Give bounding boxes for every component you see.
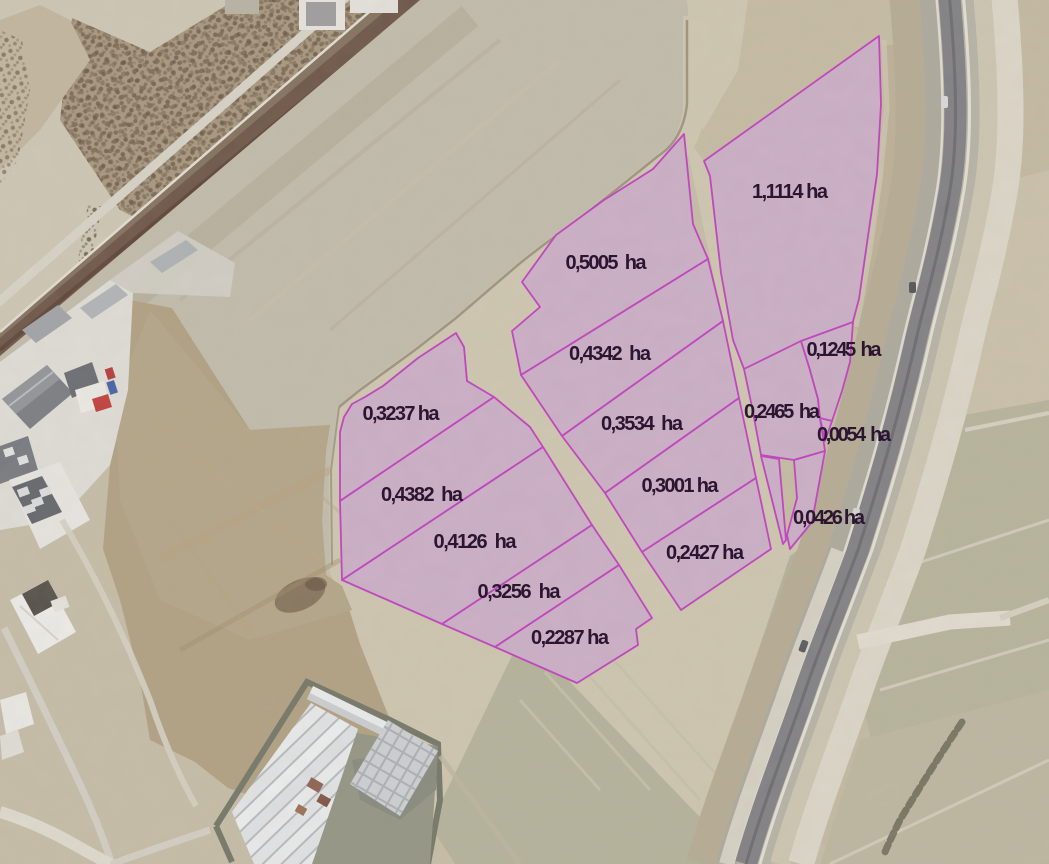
svg-text:0,2465 ha: 0,2465 ha xyxy=(744,401,821,423)
svg-text:0,1245 ha: 0,1245 ha xyxy=(807,339,883,361)
svg-text:1,1114 ha: 1,1114 ha xyxy=(752,181,829,203)
svg-text:0,5005 ha: 0,5005 ha xyxy=(566,252,648,274)
svg-text:0,4342 ha: 0,4342 ha xyxy=(569,343,652,365)
svg-text:0,0054 ha: 0,0054 ha xyxy=(817,424,892,446)
svg-text:0,3001 ha: 0,3001 ha xyxy=(642,475,720,497)
svg-text:0,2287 ha: 0,2287 ha xyxy=(531,627,610,649)
svg-text:0,0426 ha: 0,0426 ha xyxy=(793,507,866,529)
svg-text:0,3256 ha: 0,3256 ha xyxy=(478,581,562,603)
svg-text:0,2427 ha: 0,2427 ha xyxy=(666,542,745,564)
svg-text:0,4126 ha: 0,4126 ha xyxy=(434,531,518,553)
svg-text:0,4382 ha: 0,4382 ha xyxy=(381,484,464,506)
svg-text:0,3237 ha: 0,3237 ha xyxy=(363,403,441,425)
svg-text:0,3534 ha: 0,3534 ha xyxy=(601,413,684,435)
